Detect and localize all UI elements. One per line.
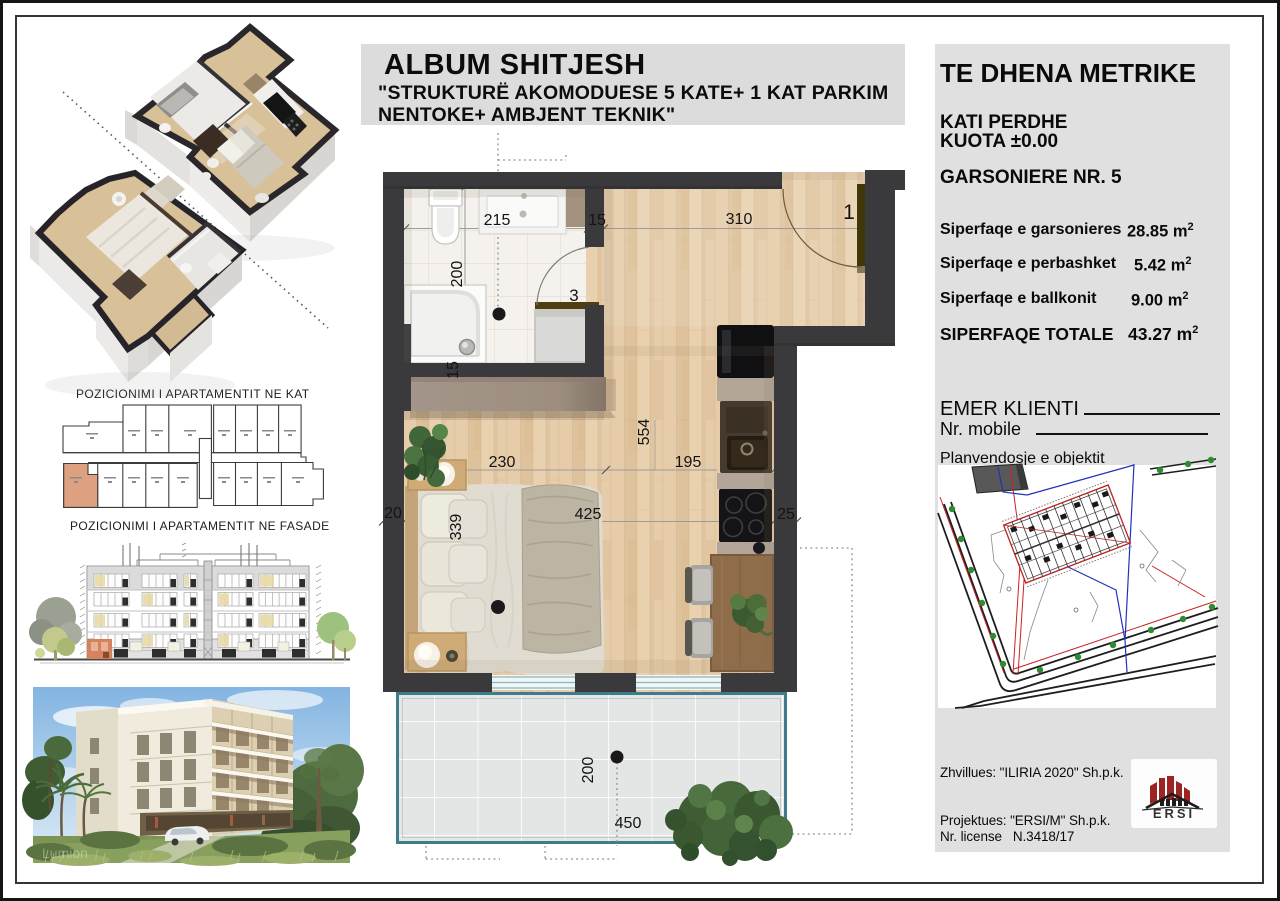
svg-text:3: 3	[569, 286, 578, 305]
svg-text:195: 195	[675, 454, 702, 471]
svg-text:25: 25	[777, 506, 795, 523]
svg-text:450: 450	[615, 815, 642, 832]
svg-text:15: 15	[445, 361, 462, 379]
svg-text:ERSI: ERSI	[1153, 806, 1195, 821]
svg-text:1: 1	[843, 201, 855, 224]
svg-text:554: 554	[636, 419, 653, 446]
svg-text:20: 20	[384, 505, 402, 522]
svg-text:230: 230	[489, 454, 516, 471]
svg-text:425: 425	[575, 506, 602, 523]
svg-text:200: 200	[580, 757, 597, 784]
svg-text:15: 15	[588, 212, 606, 229]
svg-text:200: 200	[449, 261, 466, 288]
svg-text:Lumion: Lumion	[42, 845, 88, 861]
svg-text:215: 215	[484, 212, 511, 229]
svg-text:339: 339	[448, 514, 465, 541]
svg-text:310: 310	[726, 211, 753, 228]
